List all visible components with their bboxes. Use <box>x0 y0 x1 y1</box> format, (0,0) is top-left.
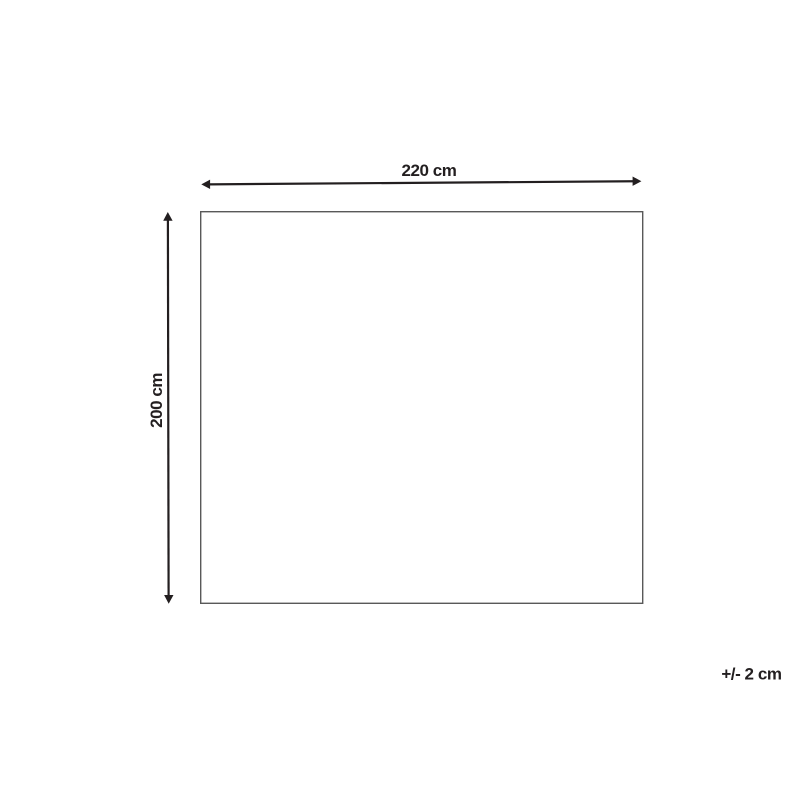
svg-text:200 cm: 200 cm <box>147 373 166 428</box>
svg-text:+/- 2 cm: +/- 2 cm <box>721 665 782 684</box>
svg-text:220 cm: 220 cm <box>402 161 457 180</box>
